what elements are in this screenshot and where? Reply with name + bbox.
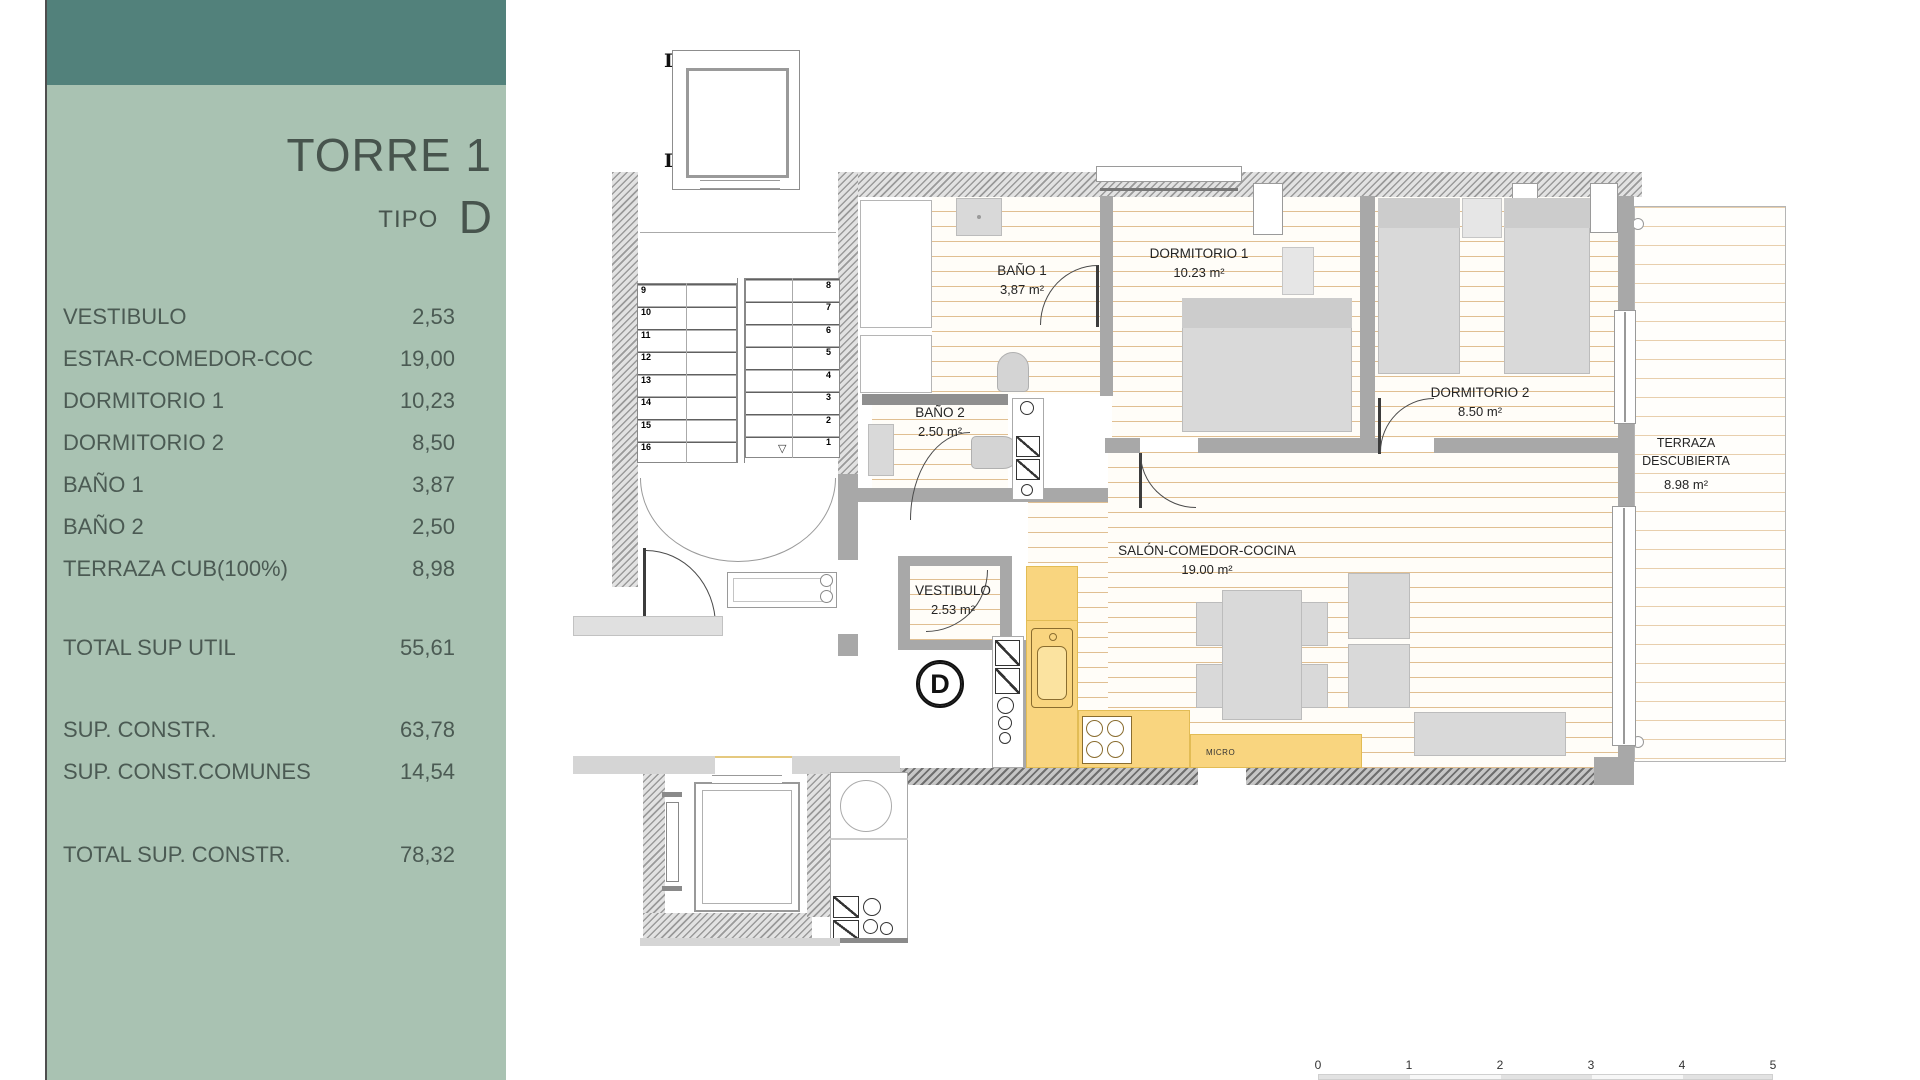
list-item: BAÑO 13,87 — [63, 464, 455, 506]
tower-title: TORRE 1 — [286, 128, 492, 182]
wall-segment — [1434, 438, 1632, 453]
unit-type-marker: D — [916, 660, 964, 708]
room-value: 8,98 — [412, 548, 455, 590]
wall-segment — [1105, 438, 1140, 453]
wall-salon-south — [898, 768, 1634, 785]
armchair — [1348, 644, 1410, 708]
counterweight — [666, 802, 679, 882]
room-label: BAÑO 2 — [63, 506, 144, 548]
stair-number: 1 — [826, 438, 831, 447]
type-label: TIPO — [378, 206, 438, 233]
stair-curve — [640, 478, 836, 562]
toilet-bano1 — [997, 352, 1029, 392]
wall-stair-right — [838, 172, 858, 474]
wall-vestibulo-right — [1000, 556, 1012, 646]
wall-corner-block — [1594, 757, 1634, 785]
scale-tick: 1 — [1399, 1058, 1419, 1072]
stair-number: 4 — [826, 371, 831, 380]
total-value: 55,61 — [400, 627, 455, 669]
shaft-wall — [807, 774, 831, 917]
room-name: DESCUBIERTA — [1642, 453, 1730, 471]
wall-dorm1-dorm2 — [1360, 196, 1375, 438]
list-item: DORMITORIO 110,23 — [63, 380, 455, 422]
room-area-list: VESTIBULO2,53 ESTAR-COMEDOR-COC19,00 DOR… — [63, 296, 455, 590]
shaft-duct-icon — [995, 668, 1020, 694]
stair-number: 3 — [826, 393, 831, 402]
list-item: VESTIBULO2,53 — [63, 296, 455, 338]
sofa — [1414, 712, 1566, 756]
stair-number: 16 — [641, 443, 651, 452]
total-label: TOTAL SUP. CONSTR. — [63, 834, 291, 876]
ibeam-icon: I — [664, 52, 673, 71]
entry-door-arc — [646, 550, 716, 626]
stair-number: 15 — [641, 421, 651, 430]
wall-band — [640, 938, 840, 946]
wall-pier — [1590, 183, 1618, 233]
burner-icon — [1107, 741, 1124, 758]
dormitorio2-label: DORMITORIO 2 8.50 m² — [1431, 384, 1530, 421]
wall-segment — [838, 634, 858, 656]
washer-icon — [840, 780, 892, 832]
washbasin-bano2 — [868, 424, 894, 476]
room-area: 3,87 m² — [997, 281, 1047, 299]
wall-opening — [1198, 768, 1246, 785]
burner-icon — [1086, 720, 1103, 737]
window-frame-line — [1624, 312, 1626, 422]
shaft-circle-icon — [999, 732, 1011, 744]
micro-label: MICRO — [1206, 748, 1235, 757]
room-label: DORMITORIO 2 — [63, 422, 224, 464]
list-item: BAÑO 22,50 — [63, 506, 455, 548]
total-value: 78,32 — [400, 834, 455, 876]
room-area: 8.50 m² — [1431, 403, 1530, 421]
stair-number: 12 — [641, 353, 651, 362]
stair-number: 13 — [641, 376, 651, 385]
constr-label: SUP. CONST.COMUNES — [63, 751, 311, 793]
wall-bath-south — [858, 488, 1108, 502]
room-value: 2,53 — [412, 296, 455, 338]
window-frame-line — [1100, 188, 1238, 191]
stair-stringer — [737, 278, 745, 463]
room-value: 10,23 — [400, 380, 455, 422]
room-area: 2.53 m² — [915, 601, 991, 619]
stair-number: 2 — [826, 416, 831, 425]
scale-tick: 3 — [1581, 1058, 1601, 1072]
entry-threshold — [573, 616, 723, 636]
floor-plan: I I 9 10 11 12 13 14 15 16 8 7 6 5 4 3 2… — [506, 0, 1920, 1080]
bano2-label: BAÑO 2 2.50 m² — [915, 404, 965, 441]
room-area: 10.23 m² — [1150, 264, 1249, 282]
wall-band — [573, 756, 715, 774]
scale-tick: 0 — [1308, 1058, 1328, 1072]
shaft-duct-icon — [1016, 436, 1040, 457]
shaft-duct-icon — [1016, 459, 1040, 480]
dormitorio1-label: DORMITORIO 1 10.23 m² — [1150, 245, 1249, 282]
elevator-car — [686, 68, 789, 178]
stair-number: 6 — [826, 326, 831, 335]
room-name: TERRAZA — [1642, 435, 1730, 453]
terraza-label: TERRAZA DESCUBIERTA 8.98 m² — [1642, 435, 1730, 494]
room-name: SALÓN-COMEDOR-COCINA — [1118, 542, 1296, 561]
ibeam-icon: I — [664, 152, 673, 171]
scale-tick: 4 — [1672, 1058, 1692, 1072]
unit-type-letter: D — [918, 662, 962, 706]
list-item: TERRAZA CUB(100%)8,98 — [63, 548, 455, 590]
list-item: TOTAL SUP. CONSTR.78,32 — [63, 834, 455, 876]
list-item: ESTAR-COMEDOR-COC19,00 — [63, 338, 455, 380]
room-value: 2,50 — [412, 506, 455, 548]
list-item: DORMITORIO 28,50 — [63, 422, 455, 464]
list-item: TOTAL SUP UTIL55,61 — [63, 627, 455, 669]
shaft-circle-icon — [863, 919, 878, 934]
room-name: DORMITORIO 2 — [1431, 384, 1530, 403]
sink-tap-icon — [1049, 633, 1057, 641]
room-area: 8.98 m² — [1642, 476, 1730, 494]
plan-title-block: TORRE 1 TIPO D — [286, 128, 492, 244]
bed-pillow-band — [1504, 198, 1590, 228]
scale-tick: 5 — [1763, 1058, 1783, 1072]
room-label: TERRAZA CUB(100%) — [63, 548, 288, 590]
total-constr-row: TOTAL SUP. CONSTR.78,32 — [63, 834, 455, 876]
salon-label: SALÓN-COMEDOR-COCINA 19.00 m² — [1118, 542, 1296, 579]
doormat-inner — [733, 578, 831, 602]
room-name: DORMITORIO 1 — [1150, 245, 1249, 264]
wall-bano1-east — [1100, 196, 1113, 396]
window-band — [715, 756, 792, 774]
room-value: 8,50 — [412, 422, 455, 464]
window-dorm1 — [1096, 166, 1242, 182]
constr-value: 63,78 — [400, 709, 455, 751]
scale-bar — [1318, 1074, 1773, 1080]
elevator-door-2 — [712, 775, 782, 784]
type-line: TIPO D — [286, 190, 492, 244]
room-value: 19,00 — [400, 338, 455, 380]
sink-basin — [1037, 646, 1067, 700]
fixture-circle-icon — [820, 574, 833, 587]
bed-pillow-band — [1378, 198, 1460, 228]
info-sidebar: TORRE 1 TIPO D VESTIBULO2,53 ESTAR-COMED… — [45, 0, 506, 1080]
list-item: SUP. CONST.COMUNES14,54 — [63, 751, 455, 793]
room-label: VESTIBULO — [63, 296, 186, 338]
stair-number: 7 — [826, 303, 831, 312]
wall-pier — [1253, 183, 1283, 235]
scale-tick: 2 — [1490, 1058, 1510, 1072]
shaft-duct-icon — [833, 896, 859, 918]
constr-label: SUP. CONSTR. — [63, 709, 217, 751]
shaft-circle-icon — [998, 716, 1012, 730]
guide-rail-icon — [662, 792, 682, 797]
room-label: DORMITORIO 1 — [63, 380, 224, 422]
shaft-circle-icon — [880, 922, 893, 935]
elevator-door — [700, 180, 780, 189]
wall-segment — [1198, 438, 1378, 453]
shaft-circle-icon — [1020, 401, 1034, 415]
nightstand — [1462, 198, 1502, 238]
shaft-closet — [860, 200, 932, 328]
guide-rail-icon — [662, 886, 682, 891]
room-name: VESTIBULO — [915, 582, 991, 601]
floor-plan-sheet: TORRE 1 TIPO D VESTIBULO2,53 ESTAR-COMED… — [0, 0, 1920, 1080]
room-value: 3,87 — [412, 464, 455, 506]
shaft-circle-icon — [863, 898, 881, 916]
room-area: 19.00 m² — [1118, 561, 1296, 579]
counter-joint-line — [1027, 620, 1077, 621]
sidebar-header-band — [47, 0, 506, 85]
constructed-rows: SUP. CONSTR.63,78 SUP. CONST.COMUNES14,5… — [63, 709, 455, 793]
wall-stair-left — [612, 172, 638, 587]
elevator-car-2-inner — [702, 790, 792, 904]
shaft-circle-icon — [997, 697, 1014, 714]
landing-line — [640, 232, 836, 233]
wall-vestibulo-left — [898, 556, 910, 646]
stair-number: 11 — [641, 331, 651, 340]
window-frame-line — [1623, 508, 1625, 744]
divider-line — [830, 838, 908, 840]
shaft-duct-icon — [833, 920, 859, 940]
type-value: D — [459, 191, 492, 243]
stair-flight-left — [637, 283, 737, 463]
wall-vestibulo-top — [900, 556, 1012, 566]
vestibulo-label: VESTIBULO 2.53 m² — [915, 582, 991, 619]
stair-split-line — [792, 278, 793, 458]
shaft-duct-icon — [995, 640, 1020, 666]
wall-segment — [838, 474, 858, 560]
room-label: BAÑO 1 — [63, 464, 144, 506]
stair-split-line — [686, 283, 687, 463]
wall-band — [830, 938, 908, 943]
armchair — [1348, 573, 1410, 639]
shower-drain-icon — [977, 215, 981, 219]
bano1-label: BAÑO 1 3,87 m² — [997, 262, 1047, 299]
dining-table — [1222, 590, 1302, 720]
shaft-closet — [860, 335, 932, 393]
shaft-circle-icon — [1021, 484, 1033, 496]
burner-icon — [1086, 741, 1103, 758]
room-label: ESTAR-COMEDOR-COC — [63, 338, 313, 380]
stair-number: 5 — [826, 348, 831, 357]
stair-number: 14 — [641, 398, 651, 407]
burner-icon — [1107, 720, 1124, 737]
room-area: 2.50 m² — [915, 423, 965, 441]
section-mark-icon: ▽ — [778, 444, 786, 455]
stair-number: 10 — [641, 308, 651, 317]
stair-number: 8 — [826, 281, 831, 290]
room-name: BAÑO 1 — [997, 262, 1047, 281]
bed-pillow-band — [1182, 298, 1352, 328]
list-item: SUP. CONSTR.63,78 — [63, 709, 455, 751]
total-label: TOTAL SUP UTIL — [63, 627, 236, 669]
room-name: BAÑO 2 — [915, 404, 965, 423]
total-util-row: TOTAL SUP UTIL55,61 — [63, 627, 455, 669]
stair-number: 9 — [641, 286, 646, 295]
fixture-circle-icon — [820, 590, 833, 603]
constr-value: 14,54 — [400, 751, 455, 793]
nightstand — [1282, 247, 1314, 295]
